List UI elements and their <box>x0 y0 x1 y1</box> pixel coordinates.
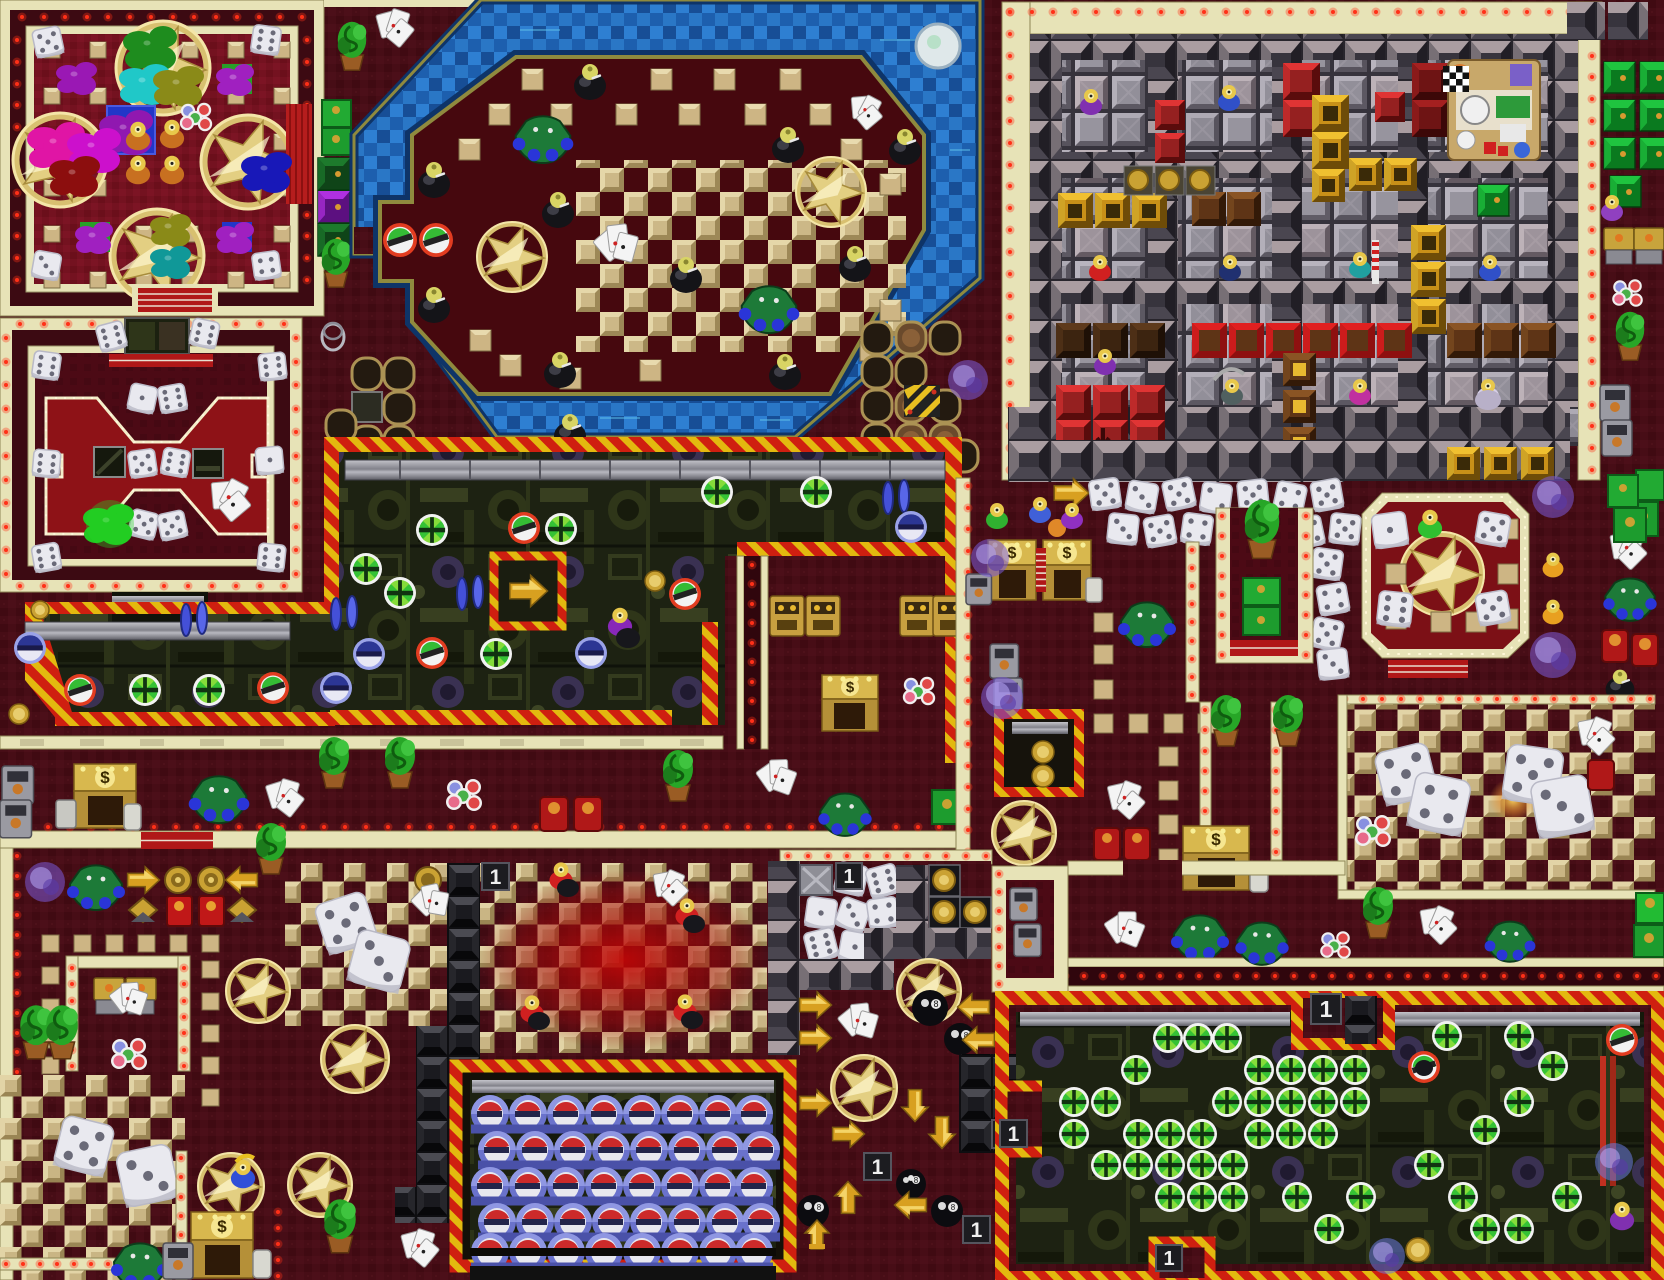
svg-text:1: 1 <box>843 866 854 888</box>
svg-text:1: 1 <box>971 1219 983 1242</box>
svg-text:1: 1 <box>490 866 502 889</box>
svg-text:1: 1 <box>1163 1248 1174 1270</box>
svg-text:8: 8 <box>933 999 938 1009</box>
svg-text:1: 1 <box>1008 1123 1020 1146</box>
svg-text:$: $ <box>217 1217 227 1236</box>
svg-text:8: 8 <box>951 1203 956 1212</box>
svg-text:$: $ <box>846 679 855 696</box>
svg-text:1: 1 <box>1320 996 1333 1022</box>
svg-text:$: $ <box>100 768 110 787</box>
svg-text:$: $ <box>1063 545 1072 562</box>
svg-text:$: $ <box>1211 830 1221 849</box>
svg-text:1: 1 <box>872 1156 884 1179</box>
svg-text:8: 8 <box>914 1176 919 1185</box>
svg-text:8: 8 <box>817 1203 822 1212</box>
